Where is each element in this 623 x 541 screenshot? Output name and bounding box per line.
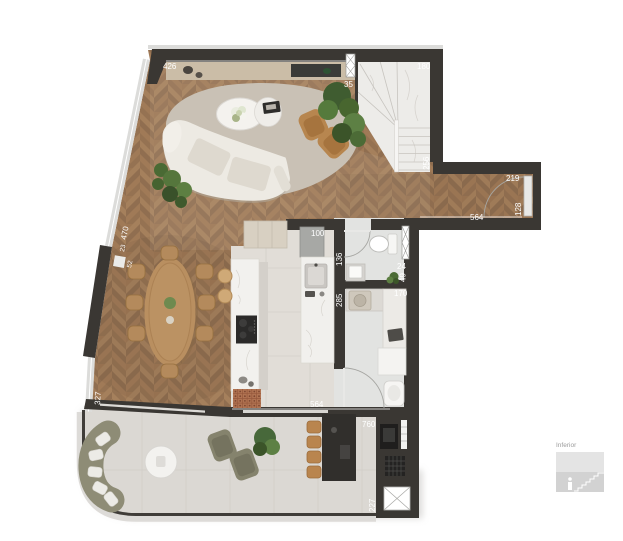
svg-text:Inferior: Inferior	[556, 442, 577, 449]
svg-text:227: 227	[368, 498, 377, 512]
svg-text:285: 285	[335, 293, 344, 307]
svg-text:564: 564	[470, 213, 484, 222]
svg-text:100: 100	[311, 229, 325, 238]
svg-text:35: 35	[344, 80, 353, 89]
svg-text:219: 219	[506, 174, 520, 183]
svg-text:327: 327	[93, 391, 103, 405]
svg-text:128: 128	[514, 202, 523, 216]
svg-text:180: 180	[417, 62, 431, 71]
svg-text:760: 760	[362, 420, 376, 429]
svg-text:256: 256	[422, 156, 431, 170]
svg-text:24: 24	[397, 262, 406, 271]
svg-text:170: 170	[394, 289, 408, 298]
svg-text:136: 136	[335, 252, 344, 266]
svg-text:49: 49	[399, 273, 408, 282]
svg-text:564: 564	[310, 400, 324, 409]
svg-text:426: 426	[163, 62, 177, 71]
